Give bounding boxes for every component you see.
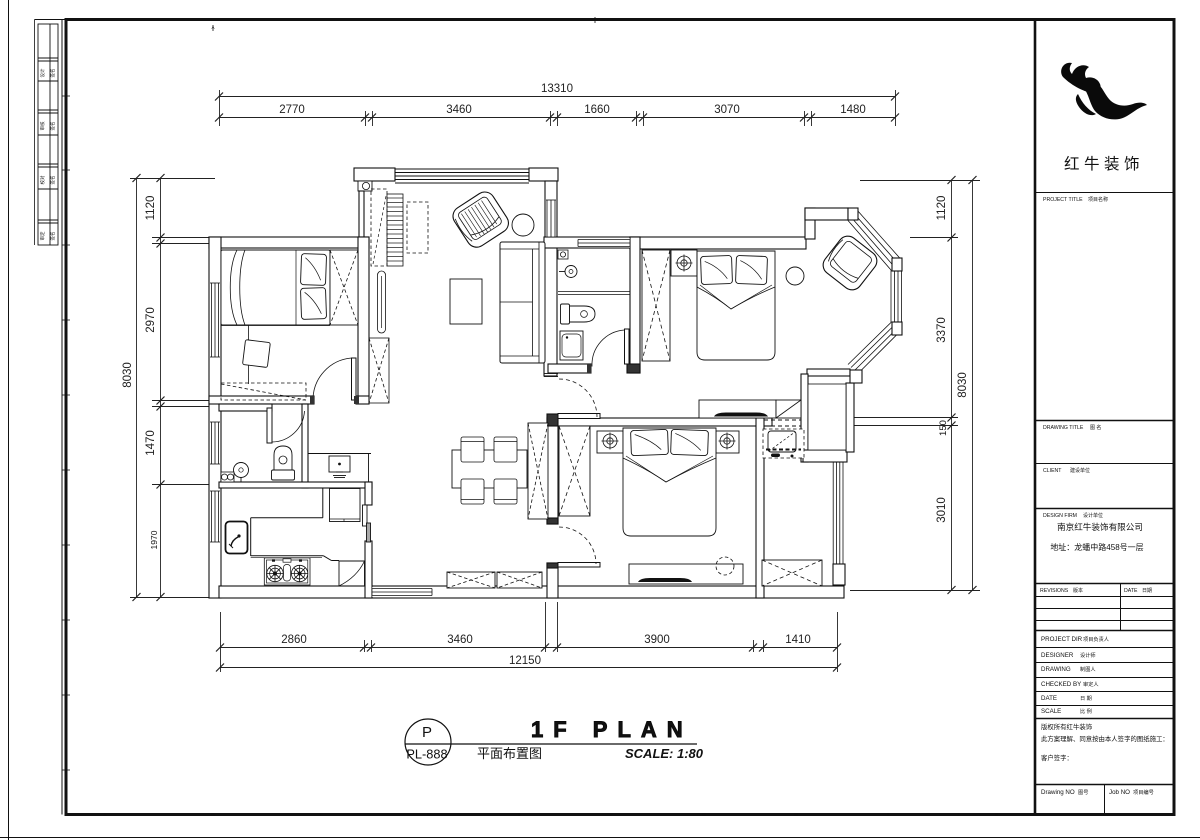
svg-text:地址：龙蟠中路458号一层: 地址：龙蟠中路458号一层: [1050, 542, 1143, 552]
svg-text:此方案理解、同意按由本人签字的图纸施工：: 此方案理解、同意按由本人签字的图纸施工：: [1041, 734, 1169, 743]
svg-text:J: J: [957, 812, 959, 817]
svg-text:项目编号: 项目编号: [1133, 788, 1154, 796]
svg-text:1470: 1470: [145, 430, 157, 456]
svg-text:A: A: [103, 812, 106, 817]
svg-text:图号: 图号: [1078, 789, 1088, 796]
svg-text:审定人: 审定人: [1083, 680, 1099, 688]
svg-text:K: K: [995, 812, 998, 817]
svg-text:南京红牛装饰有限公司: 南京红牛装饰有限公司: [1057, 521, 1143, 532]
svg-text:1410: 1410: [785, 634, 811, 646]
svg-text:P: P: [422, 724, 432, 741]
svg-text:版权所有红牛装饰: 版权所有红牛装饰: [1041, 722, 1093, 731]
svg-text:12150: 12150: [509, 655, 541, 667]
svg-text:CHECKED BY: CHECKED BY: [1041, 681, 1081, 688]
svg-text:1970: 1970: [149, 530, 159, 549]
svg-text:H: H: [794, 812, 797, 817]
svg-text:3460: 3460: [446, 104, 472, 116]
svg-text:F: F: [611, 812, 614, 817]
svg-text:PL-888: PL-888: [406, 747, 447, 762]
svg-text:日期: 日期: [1142, 588, 1152, 594]
svg-text:SCALE: 1:80: SCALE: 1:80: [625, 746, 704, 761]
svg-text:PROJECT TITLE: PROJECT TITLE: [1043, 197, 1083, 203]
svg-text:图 名: 图 名: [1090, 424, 1101, 431]
svg-text:G: G: [702, 812, 706, 817]
svg-text:DESIGNER: DESIGNER: [1041, 652, 1074, 659]
svg-text:校对: 校对: [39, 175, 46, 184]
svg-text:项目负责人: 项目负责人: [1083, 635, 1109, 643]
svg-text:I: I: [887, 812, 888, 817]
svg-text:签名: 签名: [49, 232, 56, 241]
svg-text:8030: 8030: [122, 362, 134, 388]
svg-text:1660: 1660: [584, 104, 610, 116]
svg-text:13310: 13310: [541, 83, 573, 95]
svg-text:3010: 3010: [936, 497, 948, 523]
svg-text:1120: 1120: [936, 196, 948, 221]
svg-text:DESIGN FIRM: DESIGN FIRM: [1043, 513, 1077, 519]
svg-text:审核: 审核: [39, 121, 46, 130]
svg-text:红牛装饰: 红牛装饰: [1064, 155, 1144, 173]
svg-text:签名: 签名: [49, 69, 56, 78]
svg-text:2970: 2970: [145, 307, 157, 333]
svg-text:DRAWING: DRAWING: [1041, 666, 1071, 673]
svg-text:签名: 签名: [49, 122, 56, 131]
svg-text:B: B: [211, 812, 214, 817]
svg-text:8030: 8030: [957, 372, 969, 398]
svg-text:3900: 3900: [644, 634, 670, 646]
svg-text:3070: 3070: [714, 104, 740, 116]
svg-text:项目名称: 项目名称: [1088, 196, 1108, 203]
svg-text:建设单位: 建设单位: [1070, 467, 1090, 474]
svg-text:PROJECT DIR: PROJECT DIR: [1041, 636, 1083, 643]
svg-text:Drawing NO: Drawing NO: [1041, 789, 1075, 796]
svg-text:日 期: 日 期: [1080, 695, 1092, 702]
svg-text:E: E: [518, 812, 521, 817]
svg-text:2860: 2860: [281, 634, 307, 646]
svg-text:DRAWING TITLE: DRAWING TITLE: [1043, 425, 1084, 431]
svg-text:设计: 设计: [39, 68, 46, 77]
svg-text:150: 150: [938, 420, 949, 436]
svg-text:1F PLAN: 1F PLAN: [531, 717, 693, 742]
svg-text:2770: 2770: [279, 104, 305, 116]
svg-text:设计师: 设计师: [1080, 651, 1096, 659]
svg-text:3370: 3370: [936, 317, 948, 343]
svg-text:Job NO: Job NO: [1109, 789, 1130, 796]
svg-text:制图人: 制图人: [1080, 665, 1096, 673]
svg-text:客户签字：: 客户签字：: [1041, 753, 1073, 762]
svg-text:比 例: 比 例: [1080, 707, 1092, 715]
svg-text:1480: 1480: [840, 104, 866, 116]
svg-text:平面布置图: 平面布置图: [477, 746, 542, 761]
svg-text:签名: 签名: [49, 176, 56, 185]
svg-text:设计单位: 设计单位: [1083, 512, 1103, 519]
svg-text:3460: 3460: [447, 634, 473, 646]
svg-text:版本: 版本: [1073, 587, 1083, 594]
svg-text:审定: 审定: [39, 231, 46, 240]
svg-text:A: A: [211, 25, 214, 30]
svg-text:REVISIONS: REVISIONS: [1040, 588, 1069, 594]
svg-text:DATE: DATE: [1041, 695, 1057, 702]
svg-text:SCALE: SCALE: [1041, 708, 1061, 715]
svg-text:DATE: DATE: [1124, 588, 1138, 594]
svg-text:1120: 1120: [145, 196, 157, 221]
svg-text:CLIENT: CLIENT: [1043, 468, 1062, 474]
